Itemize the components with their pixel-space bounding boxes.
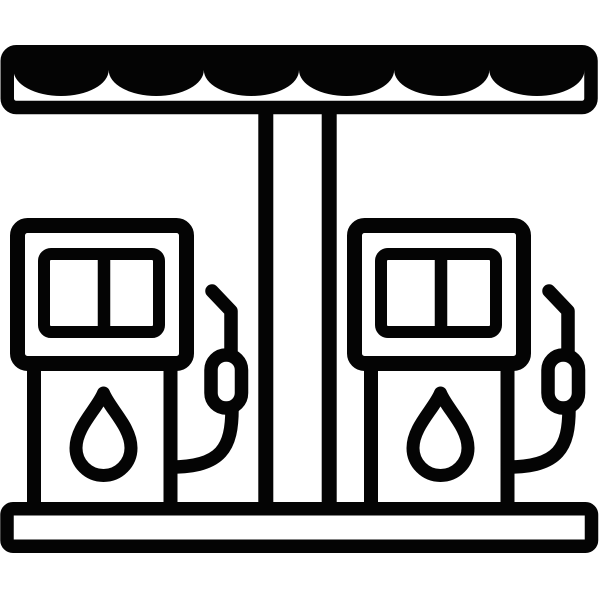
- icon-canvas: Gas station icon: [0, 0, 600, 600]
- gas-station-icon: Gas station icon: [0, 0, 600, 600]
